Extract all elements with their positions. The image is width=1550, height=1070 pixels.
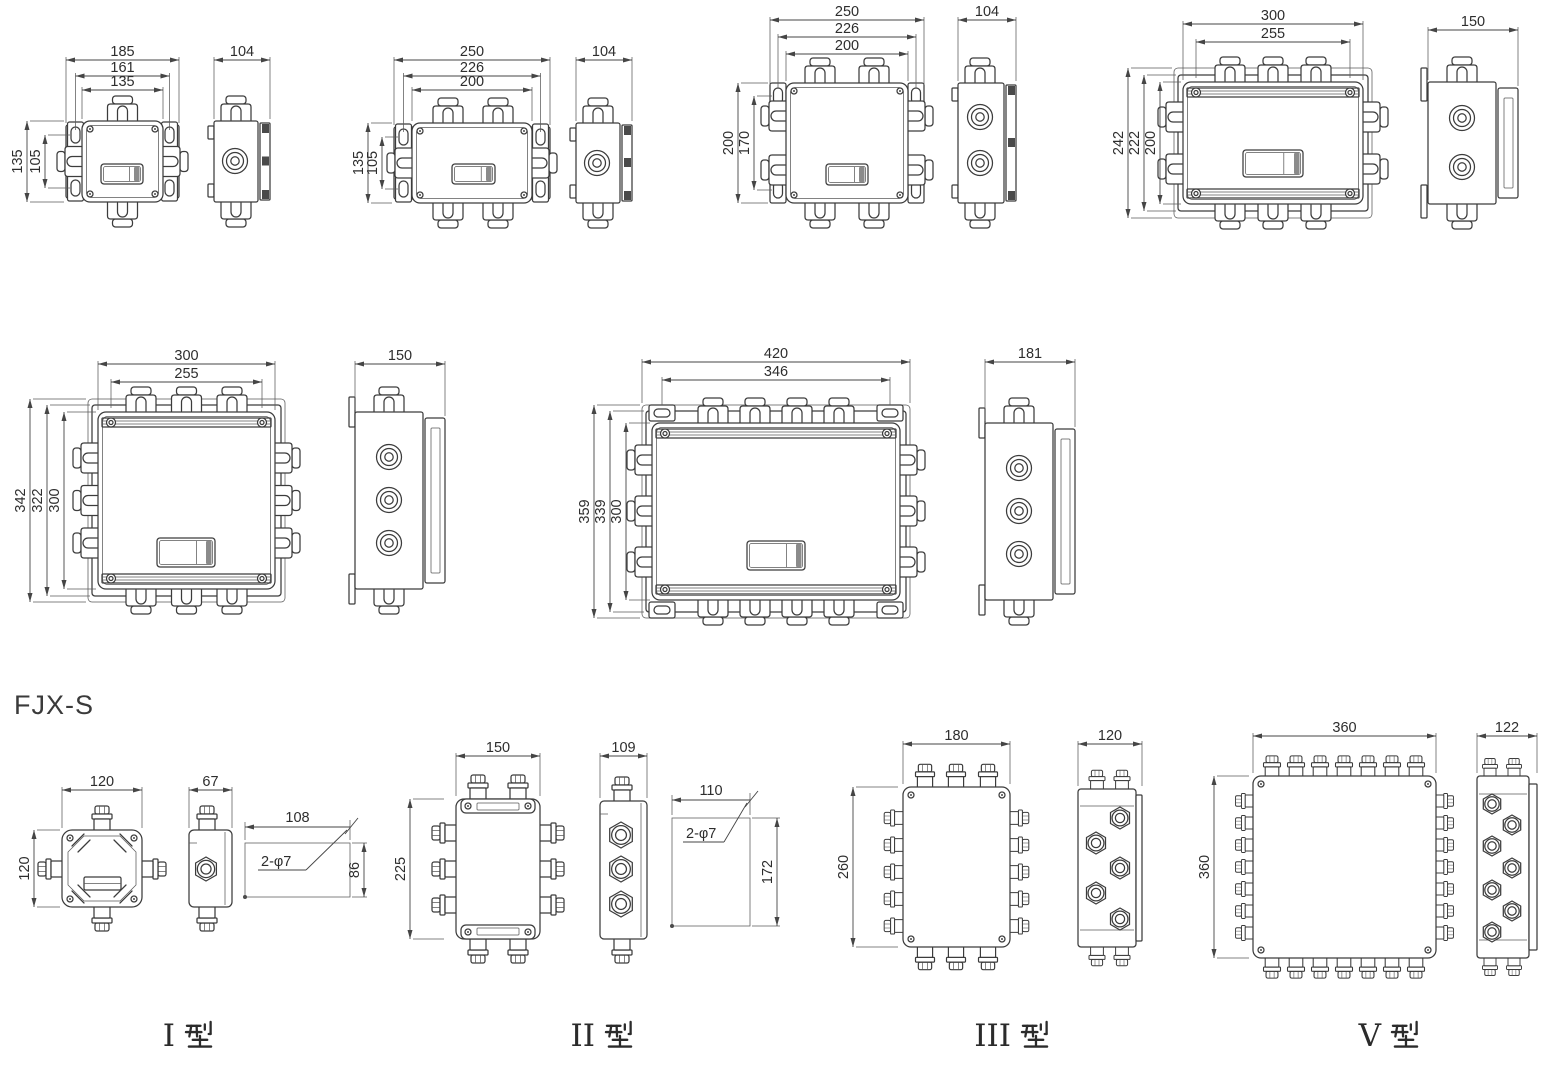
cable-gland bbox=[508, 775, 528, 801]
cable-gland bbox=[1236, 794, 1256, 809]
dim-label: 170 bbox=[737, 131, 753, 155]
cable-gland bbox=[126, 587, 156, 614]
front-view bbox=[1236, 756, 1454, 978]
mounting-ear bbox=[877, 405, 903, 421]
mounting-ear bbox=[162, 175, 178, 201]
hex-fitting bbox=[1483, 836, 1500, 856]
cable-gland bbox=[1507, 759, 1522, 779]
caption-suffix-glyph bbox=[1392, 1022, 1417, 1047]
dim-label: 342 bbox=[13, 488, 29, 512]
cable-gland bbox=[468, 937, 488, 963]
cable-gland bbox=[782, 598, 812, 625]
dim-label: 185 bbox=[110, 44, 134, 60]
dim-label: 300 bbox=[174, 348, 198, 364]
name-plate bbox=[157, 538, 215, 567]
cable-gland bbox=[530, 148, 557, 178]
side-view bbox=[979, 398, 1075, 625]
dim-label: 300 bbox=[1261, 8, 1285, 24]
cable-gland bbox=[221, 200, 251, 227]
cable-gland bbox=[805, 201, 835, 228]
side-view bbox=[208, 96, 270, 227]
front-view bbox=[884, 764, 1029, 969]
cable-gland bbox=[1361, 102, 1388, 132]
cable-gland bbox=[979, 764, 998, 789]
cable-gland bbox=[1004, 598, 1034, 625]
hex-fitting bbox=[1483, 794, 1500, 814]
cable-gland bbox=[1408, 956, 1425, 978]
cable-gland bbox=[387, 148, 414, 178]
cable-gland bbox=[538, 859, 564, 879]
cable-gland bbox=[1008, 837, 1029, 853]
dim-label: 67 bbox=[202, 774, 218, 790]
cable-gland bbox=[1236, 882, 1256, 897]
cable-gland bbox=[583, 98, 613, 125]
hex-fitting bbox=[1111, 908, 1130, 930]
cable-gland bbox=[898, 547, 925, 577]
cable-gland bbox=[172, 587, 202, 614]
dim-label: 104 bbox=[975, 4, 999, 20]
page-title: FJX-S bbox=[14, 690, 94, 720]
name-plate bbox=[747, 541, 805, 570]
drawing-canvas: 1851611351351051042502262001351051042502… bbox=[0, 0, 1550, 1070]
dim-label: 135 bbox=[10, 149, 26, 173]
hex-fitting bbox=[1111, 857, 1130, 879]
cable-gland bbox=[916, 945, 935, 970]
front-view bbox=[761, 58, 933, 228]
round-fitting bbox=[1450, 155, 1475, 180]
cable-gland bbox=[612, 777, 632, 803]
hex-fitting bbox=[1483, 880, 1500, 900]
cover-screw bbox=[107, 574, 116, 583]
cable-gland bbox=[627, 445, 654, 475]
side-view bbox=[349, 387, 445, 614]
hex-fitting bbox=[1503, 901, 1520, 921]
name-plate bbox=[452, 164, 495, 184]
dim-label: 172 bbox=[760, 860, 776, 884]
round-fitting bbox=[377, 488, 402, 513]
cable-gland bbox=[824, 598, 854, 625]
mounting-ear bbox=[649, 602, 675, 618]
cable-gland bbox=[92, 806, 112, 832]
cable-gland bbox=[92, 905, 112, 931]
cover-screw bbox=[1192, 88, 1201, 97]
cable-gland bbox=[1236, 838, 1256, 853]
cable-gland bbox=[432, 823, 458, 843]
cover-screw bbox=[258, 574, 267, 583]
cable-gland bbox=[538, 823, 564, 843]
dim-label: 104 bbox=[230, 44, 254, 60]
cable-gland bbox=[38, 859, 64, 879]
cable-gland bbox=[884, 810, 905, 826]
side-view bbox=[570, 98, 632, 228]
round-fitting bbox=[1007, 499, 1032, 524]
mounting-detail: 1101722-φ7 bbox=[670, 783, 780, 928]
cable-gland bbox=[1384, 956, 1401, 978]
cable-gland bbox=[1434, 860, 1454, 875]
cable-gland bbox=[979, 945, 998, 970]
name-plate bbox=[1243, 150, 1303, 177]
hole-note: 2-φ7 bbox=[261, 854, 291, 870]
dim-label: 322 bbox=[30, 488, 46, 512]
dim-label: 150 bbox=[486, 740, 510, 756]
hole-note: 2-φ7 bbox=[686, 826, 716, 842]
dim-label: 339 bbox=[593, 499, 609, 523]
caption-suffix-glyph bbox=[1022, 1022, 1047, 1047]
dim-label: 150 bbox=[388, 348, 412, 364]
dim-label: III bbox=[974, 1018, 1011, 1054]
cable-gland bbox=[1114, 770, 1130, 791]
cable-gland bbox=[1312, 956, 1329, 978]
cable-gland bbox=[698, 398, 728, 425]
cable-gland bbox=[627, 496, 654, 526]
dim-label: 255 bbox=[174, 366, 198, 382]
figure-box-300x200: 300255242222200150 bbox=[1111, 8, 1518, 229]
dim-label: 181 bbox=[1018, 346, 1042, 362]
cable-gland bbox=[217, 587, 247, 614]
side-view bbox=[1078, 770, 1142, 966]
cable-gland bbox=[126, 387, 156, 414]
dim-label: 110 bbox=[699, 783, 722, 799]
cable-gland bbox=[1483, 759, 1498, 779]
cable-gland bbox=[1360, 956, 1377, 978]
cable-gland bbox=[1336, 756, 1353, 778]
figure-fjx-s-type-1: 12012067108862-φ7I bbox=[17, 774, 367, 1054]
round-fitting bbox=[968, 105, 993, 130]
cable-gland bbox=[824, 398, 854, 425]
dim-label: 109 bbox=[611, 740, 635, 756]
cable-gland bbox=[1114, 945, 1130, 966]
cable-gland bbox=[761, 155, 788, 185]
figure-caption: II bbox=[571, 1018, 632, 1054]
cover-screw bbox=[258, 418, 267, 427]
cable-gland bbox=[432, 859, 458, 879]
front-view bbox=[387, 98, 557, 228]
cable-gland bbox=[108, 96, 138, 123]
figure-box-200x135: 250226200135105104 bbox=[351, 44, 632, 228]
cable-gland bbox=[197, 905, 217, 931]
dimension: 226 bbox=[404, 60, 541, 132]
cable-gland bbox=[1288, 956, 1305, 978]
mounting-ear bbox=[877, 602, 903, 618]
dimension: 172 bbox=[752, 818, 780, 926]
cable-gland bbox=[884, 891, 905, 907]
cable-gland bbox=[906, 101, 933, 131]
cable-gland bbox=[740, 598, 770, 625]
round-fitting bbox=[1450, 106, 1475, 131]
dim-label: 250 bbox=[460, 44, 484, 60]
cable-gland bbox=[273, 528, 300, 558]
hex-fitting bbox=[1503, 858, 1520, 878]
cable-gland bbox=[1236, 816, 1256, 831]
cable-gland bbox=[916, 764, 935, 789]
front-view bbox=[57, 96, 188, 227]
caption-suffix-glyph bbox=[186, 1022, 211, 1047]
cable-gland bbox=[1008, 891, 1029, 907]
cover-screw bbox=[661, 585, 670, 594]
cable-gland bbox=[1434, 816, 1454, 831]
front-view bbox=[38, 806, 166, 931]
cable-gland bbox=[483, 98, 513, 125]
dim-label: 242 bbox=[1111, 131, 1127, 155]
cable-gland bbox=[805, 58, 835, 85]
cable-gland bbox=[273, 486, 300, 516]
dim-label: II bbox=[571, 1018, 596, 1054]
front-view bbox=[1158, 57, 1388, 229]
cable-gland bbox=[1360, 756, 1377, 778]
hex-fitting bbox=[1111, 807, 1130, 829]
dim-label: 255 bbox=[1261, 26, 1285, 42]
round-fitting bbox=[223, 149, 248, 174]
dimension: 110 bbox=[672, 783, 758, 807]
dim-label: 86 bbox=[347, 862, 363, 878]
cover-screw bbox=[1346, 189, 1355, 198]
hex-fitting bbox=[1087, 832, 1106, 854]
dimension: 200 bbox=[1143, 82, 1181, 204]
dim-label: 360 bbox=[1197, 855, 1213, 879]
cable-gland bbox=[197, 806, 217, 832]
figure-fjx-s-type-3: 180260120III bbox=[836, 728, 1142, 1054]
cable-gland bbox=[432, 895, 458, 915]
cable-gland bbox=[1336, 956, 1353, 978]
cable-gland bbox=[1008, 864, 1029, 880]
round-fitting bbox=[377, 531, 402, 556]
mounting-ear bbox=[649, 405, 675, 421]
dim-label: 200 bbox=[1143, 131, 1159, 155]
cable-gland bbox=[1507, 956, 1522, 976]
dim-label: 120 bbox=[17, 856, 33, 880]
side-view bbox=[952, 58, 1016, 228]
cover-screw bbox=[107, 418, 116, 427]
round-fitting bbox=[377, 445, 402, 470]
cable-gland bbox=[612, 937, 632, 963]
cable-gland bbox=[884, 837, 905, 853]
figures-root: 1851611351351051042502262001351051042502… bbox=[10, 4, 1537, 1054]
cable-gland bbox=[1236, 926, 1256, 941]
hex-fitting bbox=[196, 857, 217, 881]
dim-label: 180 bbox=[944, 728, 968, 744]
cable-gland bbox=[221, 96, 251, 123]
cable-gland bbox=[965, 58, 995, 85]
cable-gland bbox=[73, 443, 100, 473]
dim-label: 200 bbox=[721, 131, 737, 155]
dim-label: I bbox=[163, 1018, 175, 1054]
dim-label: 150 bbox=[1461, 14, 1485, 30]
cable-gland bbox=[782, 398, 812, 425]
figure-box-300x300: 300255342322300150 bbox=[13, 348, 445, 614]
dim-label: 105 bbox=[365, 151, 381, 175]
cable-gland bbox=[161, 147, 188, 177]
figure-caption: V bbox=[1358, 1018, 1417, 1054]
cable-gland bbox=[73, 528, 100, 558]
cable-gland bbox=[859, 201, 889, 228]
figure-box-420x300: 420346359339300181 bbox=[577, 346, 1075, 625]
cable-gland bbox=[1434, 794, 1454, 809]
dim-label: 250 bbox=[835, 4, 859, 20]
side-view bbox=[600, 777, 647, 963]
cable-gland bbox=[1434, 926, 1454, 941]
dim-label: 135 bbox=[110, 74, 134, 90]
hex-fitting bbox=[1087, 882, 1106, 904]
cable-gland bbox=[1258, 202, 1288, 229]
cover-screw bbox=[883, 429, 892, 438]
cable-gland bbox=[740, 398, 770, 425]
cable-gland bbox=[627, 547, 654, 577]
cover-screw bbox=[1192, 189, 1201, 198]
round-fitting bbox=[1007, 542, 1032, 567]
dim-label: 346 bbox=[764, 364, 788, 380]
dim-label: 226 bbox=[835, 21, 859, 37]
cable-gland bbox=[698, 598, 728, 625]
cable-gland bbox=[57, 147, 84, 177]
cable-gland bbox=[583, 201, 613, 228]
hex-fitting bbox=[610, 856, 633, 882]
cable-gland bbox=[374, 587, 404, 614]
side-view bbox=[189, 806, 232, 931]
figure-box-200x200: 250226200200170104 bbox=[721, 4, 1016, 228]
dimension: 120 bbox=[1078, 728, 1142, 786]
cable-gland bbox=[73, 486, 100, 516]
cable-gland bbox=[273, 443, 300, 473]
hex-fitting bbox=[610, 891, 633, 917]
cable-gland bbox=[140, 859, 166, 879]
round-fitting bbox=[585, 151, 610, 176]
cable-gland bbox=[1158, 102, 1185, 132]
dim-label: 122 bbox=[1495, 720, 1519, 736]
dim-label: 225 bbox=[393, 857, 409, 881]
cable-gland bbox=[761, 101, 788, 131]
cable-gland bbox=[1236, 860, 1256, 875]
front-view bbox=[432, 775, 564, 963]
front-view bbox=[73, 387, 300, 614]
mounting-ear bbox=[533, 176, 549, 202]
dim-label: 200 bbox=[835, 38, 859, 54]
mounting-detail: 108862-φ7 bbox=[243, 810, 367, 899]
cable-gland bbox=[108, 200, 138, 227]
cable-gland bbox=[433, 98, 463, 125]
dim-label: 360 bbox=[1332, 720, 1356, 736]
dimension: 200 bbox=[412, 74, 532, 121]
cable-gland bbox=[483, 201, 513, 228]
cable-gland bbox=[1447, 57, 1477, 84]
side-view bbox=[1421, 57, 1518, 229]
cable-gland bbox=[1434, 904, 1454, 919]
cable-gland bbox=[1004, 398, 1034, 425]
cable-gland bbox=[508, 937, 528, 963]
cable-gland bbox=[1258, 57, 1288, 84]
dim-label: 120 bbox=[90, 774, 114, 790]
cable-gland bbox=[947, 764, 966, 789]
hex-fitting bbox=[1483, 922, 1500, 942]
figure-box-135: 185161135135105104 bbox=[10, 44, 270, 227]
dim-label: 359 bbox=[577, 499, 593, 523]
dim-label: 120 bbox=[1098, 728, 1122, 744]
cover-screw bbox=[1346, 88, 1355, 97]
dim-label: 108 bbox=[285, 810, 309, 826]
dim-label: 420 bbox=[764, 346, 788, 362]
cable-gland bbox=[1264, 756, 1281, 778]
dim-label: 104 bbox=[592, 44, 616, 60]
cable-gland bbox=[1215, 202, 1245, 229]
round-fitting bbox=[968, 151, 993, 176]
cable-gland bbox=[1008, 810, 1029, 826]
dim-label: 300 bbox=[609, 499, 625, 523]
cable-gland bbox=[1089, 770, 1105, 791]
cable-gland bbox=[1301, 202, 1331, 229]
cable-gland bbox=[859, 58, 889, 85]
dim-label: V bbox=[1358, 1018, 1382, 1054]
cable-gland bbox=[1089, 945, 1105, 966]
cable-gland bbox=[172, 387, 202, 414]
cable-gland bbox=[1384, 756, 1401, 778]
caption-suffix-glyph bbox=[606, 1022, 631, 1047]
cover-screw bbox=[883, 585, 892, 594]
cable-gland bbox=[884, 864, 905, 880]
cover-screw bbox=[661, 429, 670, 438]
cable-gland bbox=[1215, 57, 1245, 84]
hex-fitting bbox=[1503, 815, 1520, 835]
cable-gland bbox=[898, 445, 925, 475]
cable-gland bbox=[1158, 154, 1185, 184]
cable-gland bbox=[1447, 202, 1477, 229]
cable-gland bbox=[906, 155, 933, 185]
cable-gland bbox=[1361, 154, 1388, 184]
dim-label: 260 bbox=[836, 855, 852, 879]
cable-gland bbox=[538, 895, 564, 915]
cable-gland bbox=[433, 201, 463, 228]
dim-label: 222 bbox=[1127, 131, 1143, 155]
cable-gland bbox=[1288, 756, 1305, 778]
cable-gland bbox=[374, 387, 404, 414]
technical-drawing: 1851611351351051042502262001351051042502… bbox=[0, 0, 1550, 1070]
cable-gland bbox=[1008, 918, 1029, 934]
dim-label: 105 bbox=[28, 149, 44, 173]
cable-gland bbox=[1483, 956, 1498, 976]
cable-gland bbox=[1264, 956, 1281, 978]
cable-gland bbox=[898, 496, 925, 526]
figure-fjx-s-type-2: 1502251091101722-φ7II bbox=[393, 740, 780, 1054]
dimension: 226 bbox=[778, 21, 916, 88]
cable-gland bbox=[468, 775, 488, 801]
cable-gland bbox=[965, 201, 995, 228]
cable-gland bbox=[1434, 882, 1454, 897]
dimension: 346 bbox=[662, 364, 890, 405]
name-plate bbox=[826, 164, 868, 185]
cable-gland bbox=[884, 918, 905, 934]
figure-caption: I bbox=[163, 1018, 211, 1054]
cable-gland bbox=[1236, 904, 1256, 919]
cable-gland bbox=[1408, 756, 1425, 778]
cable-gland bbox=[947, 945, 966, 970]
cable-gland bbox=[1301, 57, 1331, 84]
cable-gland bbox=[1312, 756, 1329, 778]
figure-fjx-s-type-5: 360360122V bbox=[1197, 720, 1537, 1054]
figure-caption: III bbox=[974, 1018, 1047, 1054]
side-view bbox=[1477, 759, 1537, 976]
dimension: 200 bbox=[786, 38, 908, 81]
name-plate bbox=[101, 164, 143, 184]
cable-gland bbox=[217, 387, 247, 414]
dim-label: 300 bbox=[47, 488, 63, 512]
front-view bbox=[627, 398, 925, 625]
round-fitting bbox=[1007, 456, 1032, 481]
cable-gland bbox=[1434, 838, 1454, 853]
dim-label: 200 bbox=[460, 74, 484, 90]
dimension: 108 bbox=[245, 810, 358, 834]
hex-fitting bbox=[610, 822, 633, 848]
